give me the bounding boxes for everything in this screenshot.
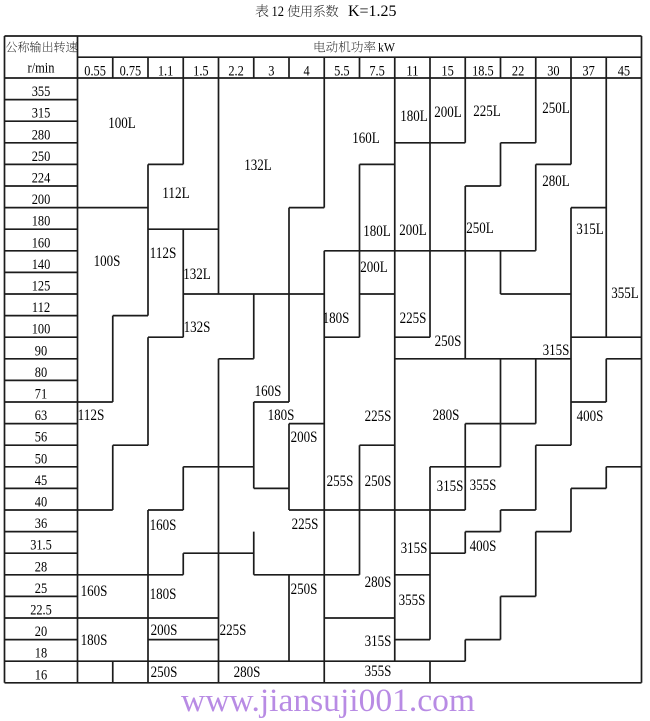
svg-text:400S: 400S xyxy=(577,408,604,425)
svg-text:90: 90 xyxy=(35,343,47,359)
svg-text:kW: kW xyxy=(378,40,396,55)
svg-text:25: 25 xyxy=(35,581,47,597)
svg-text:11: 11 xyxy=(406,64,418,80)
svg-text:280S: 280S xyxy=(365,574,392,591)
svg-text:2.2: 2.2 xyxy=(228,64,244,80)
svg-text:22.5: 22.5 xyxy=(30,603,52,619)
svg-text:18: 18 xyxy=(35,646,47,662)
svg-text:355S: 355S xyxy=(470,477,497,494)
svg-text:45: 45 xyxy=(35,473,47,489)
svg-text:315L: 315L xyxy=(576,221,604,238)
svg-text:71: 71 xyxy=(35,387,47,403)
svg-text:280S: 280S xyxy=(433,407,460,424)
svg-text:31.5: 31.5 xyxy=(30,538,52,554)
svg-text:225S: 225S xyxy=(400,310,427,327)
svg-text:45: 45 xyxy=(618,64,630,80)
svg-text:315S: 315S xyxy=(437,478,464,495)
svg-text:200S: 200S xyxy=(151,622,178,639)
svg-text:315S: 315S xyxy=(543,342,570,359)
svg-text:250L: 250L xyxy=(542,100,570,117)
svg-text:56: 56 xyxy=(35,430,47,446)
svg-text:355: 355 xyxy=(32,84,51,100)
svg-text:180L: 180L xyxy=(363,223,391,240)
svg-text:1.5: 1.5 xyxy=(193,64,209,80)
svg-text:160S: 160S xyxy=(150,517,177,534)
svg-text:5.5: 5.5 xyxy=(334,64,350,80)
svg-text:0.55: 0.55 xyxy=(84,64,106,80)
svg-text:160L: 160L xyxy=(352,130,380,147)
svg-text:36: 36 xyxy=(35,516,47,532)
svg-text:3: 3 xyxy=(268,64,274,80)
svg-text:28: 28 xyxy=(35,559,47,575)
svg-text:200: 200 xyxy=(32,192,51,208)
svg-text:400S: 400S xyxy=(470,538,497,555)
svg-text:30: 30 xyxy=(547,64,559,80)
svg-text:355L: 355L xyxy=(611,285,639,302)
svg-text:100: 100 xyxy=(32,322,51,338)
svg-text:132S: 132S xyxy=(184,319,211,336)
svg-text:180S: 180S xyxy=(150,586,177,603)
svg-text:0.75: 0.75 xyxy=(120,64,142,80)
svg-text:100L: 100L xyxy=(108,115,136,132)
svg-text:250S: 250S xyxy=(435,333,462,350)
svg-text:22: 22 xyxy=(512,64,524,80)
svg-text:112: 112 xyxy=(32,300,51,316)
svg-text:355S: 355S xyxy=(365,663,392,680)
svg-text:180: 180 xyxy=(32,214,51,230)
svg-text:140: 140 xyxy=(32,257,51,273)
svg-text:18.5: 18.5 xyxy=(472,64,494,80)
svg-text:315S: 315S xyxy=(365,633,392,650)
svg-text:50: 50 xyxy=(35,451,47,467)
svg-text:7.5: 7.5 xyxy=(369,64,385,80)
svg-text:112S: 112S xyxy=(150,245,177,262)
svg-text:250S: 250S xyxy=(291,581,318,598)
svg-text:280L: 280L xyxy=(542,173,570,190)
svg-text:20: 20 xyxy=(35,624,47,640)
svg-text:225S: 225S xyxy=(365,408,392,425)
svg-text:40: 40 xyxy=(35,495,47,511)
svg-text:37: 37 xyxy=(582,64,595,80)
svg-text:180S: 180S xyxy=(323,310,350,327)
svg-text:280: 280 xyxy=(32,127,51,143)
svg-text:132L: 132L xyxy=(183,266,211,283)
svg-text:16: 16 xyxy=(35,667,47,683)
svg-text:180S: 180S xyxy=(268,407,295,424)
svg-text:15: 15 xyxy=(441,64,453,80)
svg-text:200L: 200L xyxy=(434,104,462,121)
svg-text:4: 4 xyxy=(304,64,311,80)
svg-text:225S: 225S xyxy=(220,622,247,639)
svg-text:250L: 250L xyxy=(466,220,494,237)
svg-text:160S: 160S xyxy=(255,383,282,400)
svg-text:225S: 225S xyxy=(292,516,319,533)
svg-text:www.jiansuji001.com: www.jiansuji001.com xyxy=(181,683,475,719)
svg-text:250S: 250S xyxy=(151,664,178,681)
svg-text:112S: 112S xyxy=(78,407,105,424)
svg-text:315: 315 xyxy=(32,106,51,122)
svg-text:160: 160 xyxy=(32,235,51,251)
svg-text:280S: 280S xyxy=(234,664,261,681)
svg-text:200L: 200L xyxy=(360,259,388,276)
svg-text:180S: 180S xyxy=(81,632,108,649)
svg-text:315S: 315S xyxy=(401,540,428,557)
svg-text:160S: 160S xyxy=(81,583,108,600)
svg-text:225L: 225L xyxy=(473,103,501,120)
svg-text:200S: 200S xyxy=(291,429,318,446)
svg-text:K=1.25: K=1.25 xyxy=(348,3,397,20)
svg-text:63: 63 xyxy=(35,408,47,424)
svg-text:200L: 200L xyxy=(399,222,427,239)
svg-text:80: 80 xyxy=(35,365,47,381)
svg-text:250S: 250S xyxy=(365,473,392,490)
svg-text:r/min: r/min xyxy=(28,60,56,76)
svg-text:355S: 355S xyxy=(399,592,426,609)
svg-text:112L: 112L xyxy=(162,185,190,202)
svg-text:1.1: 1.1 xyxy=(158,64,174,80)
svg-text:250: 250 xyxy=(32,149,51,165)
svg-text:224: 224 xyxy=(32,171,51,187)
svg-text:125: 125 xyxy=(32,279,51,295)
svg-text:132L: 132L xyxy=(244,157,272,174)
svg-text:12: 12 xyxy=(272,3,285,20)
svg-text:180L: 180L xyxy=(400,108,428,125)
svg-text:255S: 255S xyxy=(327,473,354,490)
svg-text:100S: 100S xyxy=(94,253,121,270)
